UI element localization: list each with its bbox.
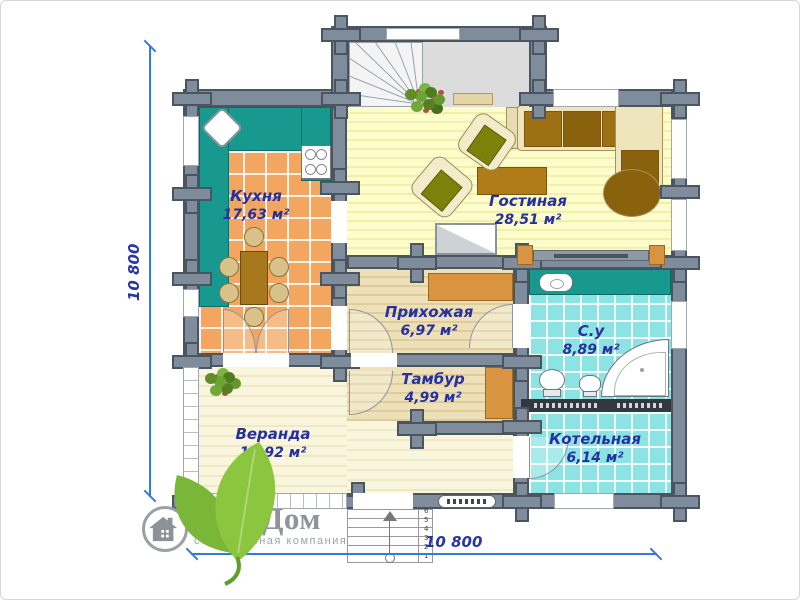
window [671,301,687,349]
floor-plan-canvas: Кухня 17,63 м² Гостиная 28,51 м² Прихожа… [0,0,800,600]
room-area: 6,97 м² [359,322,499,341]
room-area: 8,89 м² [531,341,651,360]
dining-chair [269,257,289,277]
bidet-base [583,391,597,397]
room-label-tambour: Тамбур 4,99 м² [363,369,503,408]
room-name: Котельная [549,430,641,448]
window [554,493,614,509]
room-label-boiler: Котельная 6,14 м² [525,429,665,468]
porch-detail [438,495,496,508]
wall-bay-right [529,26,547,107]
room-area: 17,63 м² [186,206,326,225]
room-label-kitchen: Кухня 17,63 м² [186,186,326,225]
room-area: 4,99 м² [363,389,503,408]
room-name: Гостиная [489,192,567,210]
wall-hatch [617,403,665,408]
room-label-living: Гостиная 28,51 м² [448,191,608,230]
hallway-wardrobe [428,273,513,301]
window [671,199,687,251]
toilet-base [543,389,561,397]
step-number: 5 [424,516,428,524]
wall-top-left [183,89,349,107]
toilet [539,369,565,391]
dining-chair [219,257,239,277]
doorway-kitchen-living [331,201,347,243]
leaf-logo-icon [149,437,324,587]
steps-arrow-head [383,511,397,521]
room-name: С.у [578,322,604,340]
window [553,89,619,107]
room-area: 28,51 м² [448,211,608,230]
tv-stand-left-cabinet [517,245,533,265]
dimension-line-left [149,45,151,497]
tv-stand [533,250,649,261]
step-number: 6 [424,507,428,515]
doorway-kitchen-hall [331,306,347,350]
window [671,119,687,179]
room-label-hallway: Прихожая 6,97 м² [359,302,499,341]
wall-tambour-bottom [397,421,513,435]
window [386,28,460,40]
dining-chair [244,227,264,247]
room-name: Кухня [230,187,282,205]
tv-stand-right-cabinet [649,245,665,265]
room-name: Тамбур [401,370,465,388]
plant [405,89,417,100]
step-number: 4 [424,525,428,533]
sofa-round-end [603,169,661,217]
doorway-kitchen-veranda [223,353,289,367]
dimension-label-bottom: 10 800 [425,533,482,551]
bathroom-sink [539,273,573,292]
stove [301,145,331,179]
window [183,289,199,317]
entry-doorway [353,493,413,509]
doorway-hall-tambour [351,353,397,367]
dining-chair [219,283,239,303]
bench [453,93,493,105]
room-label-bathroom: С.у 8,89 м² [531,321,651,360]
plant [205,373,217,384]
dining-table [240,251,268,305]
doorway-hall-bath [513,304,529,348]
room-name: Прихожая [385,303,473,321]
dining-chair [269,283,289,303]
dimension-label-left: 10 800 [125,244,143,301]
room-area: 6,14 м² [525,449,665,468]
wall-hatch [534,403,600,408]
window [183,116,199,166]
